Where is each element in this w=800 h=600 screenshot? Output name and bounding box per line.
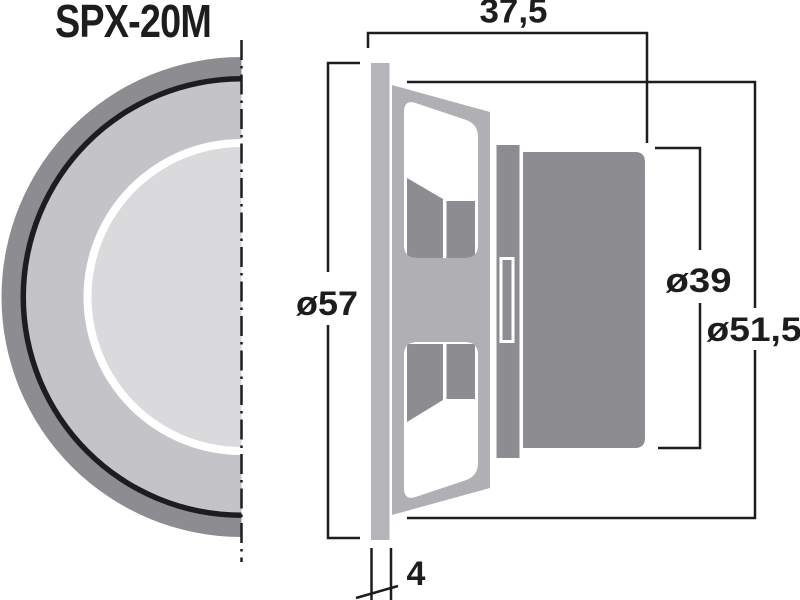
dim-line-outer-diameter-bottom — [328, 325, 360, 538]
drawing-canvas: SPX-20M — [0, 0, 800, 600]
mounting-flange — [371, 63, 390, 540]
dim-label-basket-diameter: ø51,5 — [707, 311, 800, 349]
dim-line-magnet-top — [655, 148, 700, 250]
page-title: SPX-20M — [55, 0, 211, 47]
magnet — [523, 152, 645, 448]
dim-line-outer-diameter-top — [328, 63, 360, 272]
dim-label-magnet-diameter: ø39 — [666, 262, 732, 300]
dim-label-outer-diameter: ø57 — [296, 285, 358, 323]
dim-label-depth: 37,5 — [480, 0, 548, 31]
speaker-technical-drawing: SPX-20M — [0, 0, 800, 600]
cone-section-bottom-right — [447, 344, 476, 399]
side-view — [371, 63, 645, 540]
dim-line-magnet-bottom — [658, 303, 700, 448]
dim-label-flange-thickness: 4 — [407, 555, 426, 593]
cone-section-top-right — [447, 201, 476, 258]
